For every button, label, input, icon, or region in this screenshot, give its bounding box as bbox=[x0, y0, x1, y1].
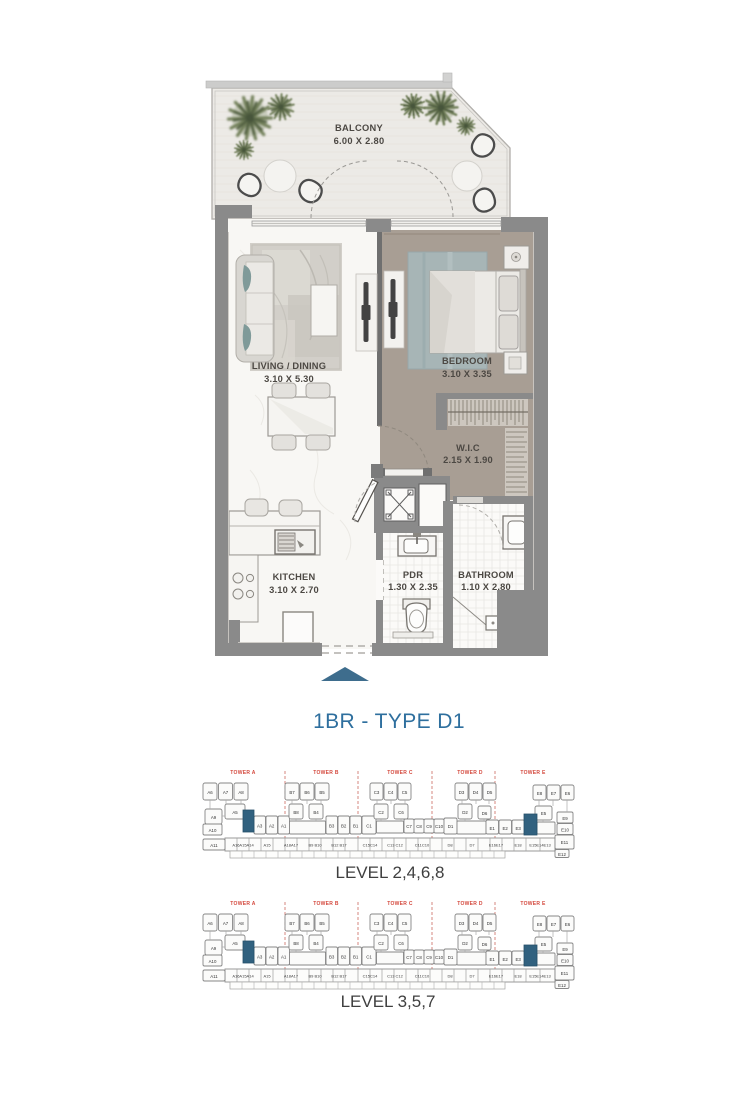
svg-text:3.10 X 2.70: 3.10 X 2.70 bbox=[269, 585, 319, 595]
svg-text:6.00 X 2.80: 6.00 X 2.80 bbox=[334, 136, 385, 146]
svg-text:2.15 X 1.90: 2.15 X 1.90 bbox=[443, 455, 493, 465]
svg-text:W.I.C: W.I.C bbox=[456, 443, 480, 453]
svg-text:3.10 X 3.35: 3.10 X 3.35 bbox=[442, 369, 492, 379]
svg-text:1BR - TYPE D1: 1BR - TYPE D1 bbox=[313, 710, 465, 733]
svg-text:1.30 X 2.35: 1.30 X 2.35 bbox=[388, 582, 438, 592]
svg-text:3.10 X 5.30: 3.10 X 5.30 bbox=[264, 374, 314, 384]
svg-text:KITCHEN: KITCHEN bbox=[273, 572, 316, 582]
svg-text:BATHROOM: BATHROOM bbox=[458, 570, 514, 580]
svg-text:LEVEL 3,5,7: LEVEL 3,5,7 bbox=[341, 992, 436, 1011]
svg-text:LEVEL 2,4,6,8: LEVEL 2,4,6,8 bbox=[335, 863, 444, 882]
svg-text:BEDROOM: BEDROOM bbox=[442, 356, 492, 366]
svg-text:BALCONY: BALCONY bbox=[335, 123, 384, 133]
svg-text:1.10 X 2.80: 1.10 X 2.80 bbox=[461, 582, 511, 592]
svg-text:PDR: PDR bbox=[403, 570, 423, 580]
svg-text:LIVING / DINING: LIVING / DINING bbox=[252, 361, 326, 371]
